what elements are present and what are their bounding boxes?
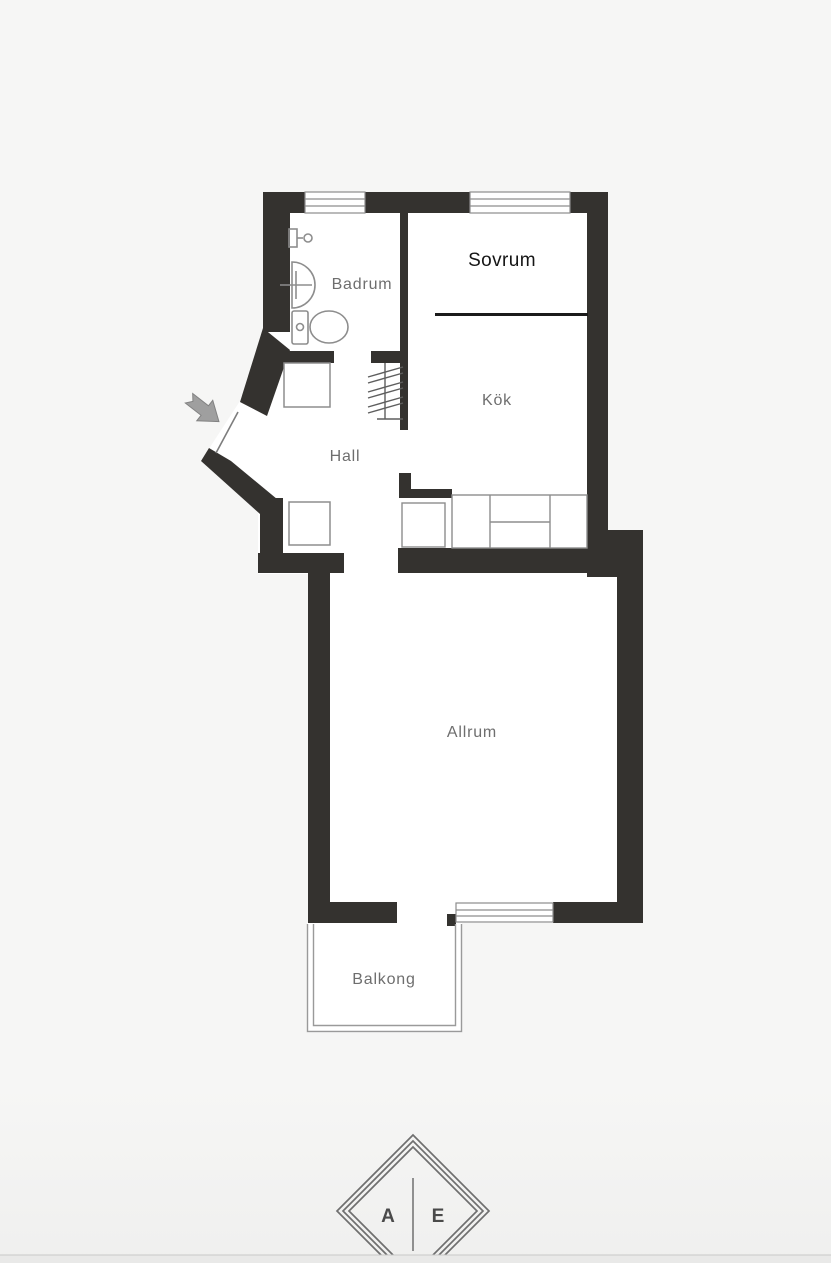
wall-bathroom-south-left: [280, 351, 334, 363]
floor-plan-page: Sovrum Badrum Kök Hall Allrum Balkong A …: [0, 0, 831, 1263]
logo-letter-e: E: [432, 1206, 445, 1227]
wall-livingroom-west: [308, 572, 330, 923]
room-label-badrum: Badrum: [332, 276, 393, 293]
window-bedroom: [470, 192, 570, 213]
window-livingroom: [456, 903, 553, 922]
room-label-kok: Kök: [482, 392, 512, 409]
wall-livingroom-south-right: [553, 902, 643, 923]
footer-bar: [0, 1255, 831, 1263]
wall-balcony-door-jamb: [447, 914, 456, 926]
window-bathroom: [305, 192, 365, 213]
logo-letter-a: A: [381, 1206, 395, 1227]
kitchen-cabinet: [402, 503, 445, 547]
closet-hall-lower: [289, 502, 330, 545]
kitchen-counter: [452, 495, 587, 548]
wall-livingroom-east: [617, 575, 643, 923]
wall-right-upper: [587, 192, 608, 535]
room-label-balkong: Balkong: [352, 971, 415, 988]
room-label-allrum: Allrum: [447, 724, 497, 741]
wall-hall-south: [258, 553, 344, 573]
closet-hall-upper: [284, 363, 330, 407]
entrance-arrow-icon: [181, 388, 227, 432]
room-label-sovrum: Sovrum: [468, 250, 536, 271]
kitchen-fittings: [402, 495, 587, 548]
floor-plan: Sovrum Badrum Kök Hall Allrum Balkong A …: [0, 0, 831, 1263]
wall-hall-west: [260, 498, 283, 558]
wall-right-corner-block: [587, 530, 643, 577]
wall-kitchen-nib-horizontal: [399, 489, 452, 498]
wall-left: [263, 192, 290, 332]
wall-top-middle: [365, 192, 470, 213]
room-label-hall: Hall: [330, 448, 361, 465]
wall-livingroom-south-left: [308, 902, 397, 923]
